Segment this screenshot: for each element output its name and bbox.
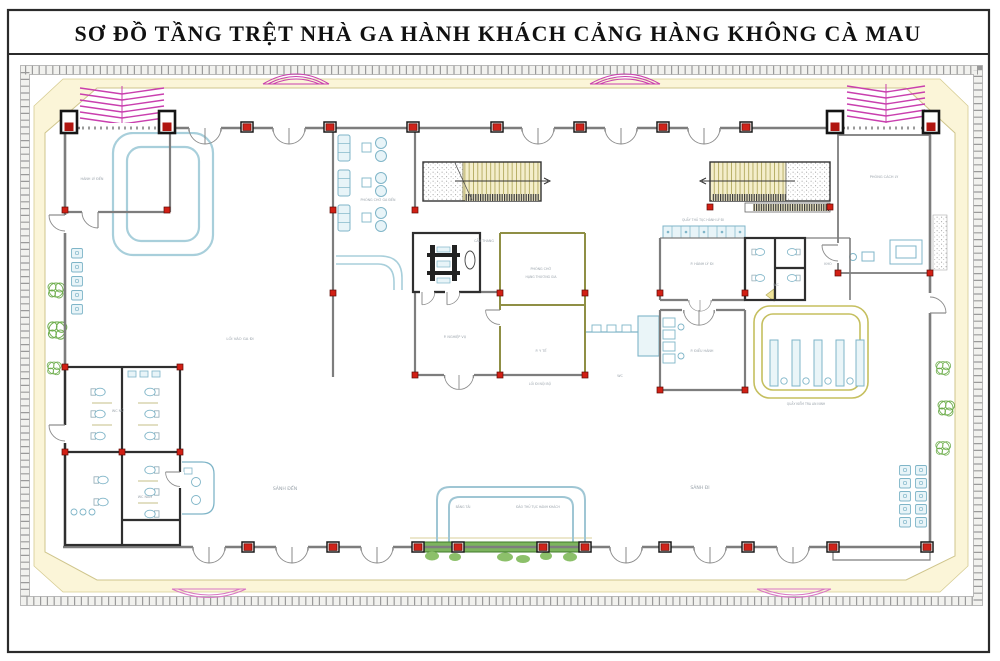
page-title: SƠ ĐỒ TẦNG TRỆT NHÀ GA HÀNH KHÁCH CẢNG H… [74,21,921,46]
room-label: PHÒNG CHỜ [531,266,552,271]
floor-plan-drawing: SƠ ĐỒ TẦNG TRỆT NHÀ GA HÀNH KHÁCH CẢNG H… [0,0,1000,661]
room-label: QUẦY THỦ TỤC HÀNH LÝ ĐI [682,217,724,222]
room-label: LỐI ĐI NỘI BỘ [529,381,552,386]
room-label: WC NỮ [112,408,124,413]
room-label: CẦU THANG [474,238,494,243]
room-label: P. NGHIỆP VỤ [444,334,467,339]
room-label: KHO [824,262,832,266]
room-label: WC NAM [138,495,153,499]
room-label: WC [617,374,623,378]
room-label: P. HÀNH LÝ ĐI [691,261,714,266]
room-label: HẠNG THƯƠNG GIA [526,275,558,279]
floor-plan-page: SƠ ĐỒ TẦNG TRỆT NHÀ GA HÀNH KHÁCH CẢNG H… [0,0,1000,661]
ticket-counter-band [663,226,745,238]
room-label: LỐI VÀO GA ĐI [226,336,253,341]
waiting-chairs-left [72,249,83,315]
paving-speckle-right [933,215,947,270]
room-label: PHÒNG CÁCH LY [870,174,899,179]
room-label: WC [773,283,779,287]
room-label: P. ĐIỀU HÀNH [691,348,714,353]
room-label: BĂNG TẢI [456,504,471,509]
room-label: QUẦY KIỂM TRA AN NINH [787,401,826,406]
room-label: ĐẢO THỦ TỤC HÀNH KHÁCH [516,504,560,509]
staircase-left [423,162,550,201]
